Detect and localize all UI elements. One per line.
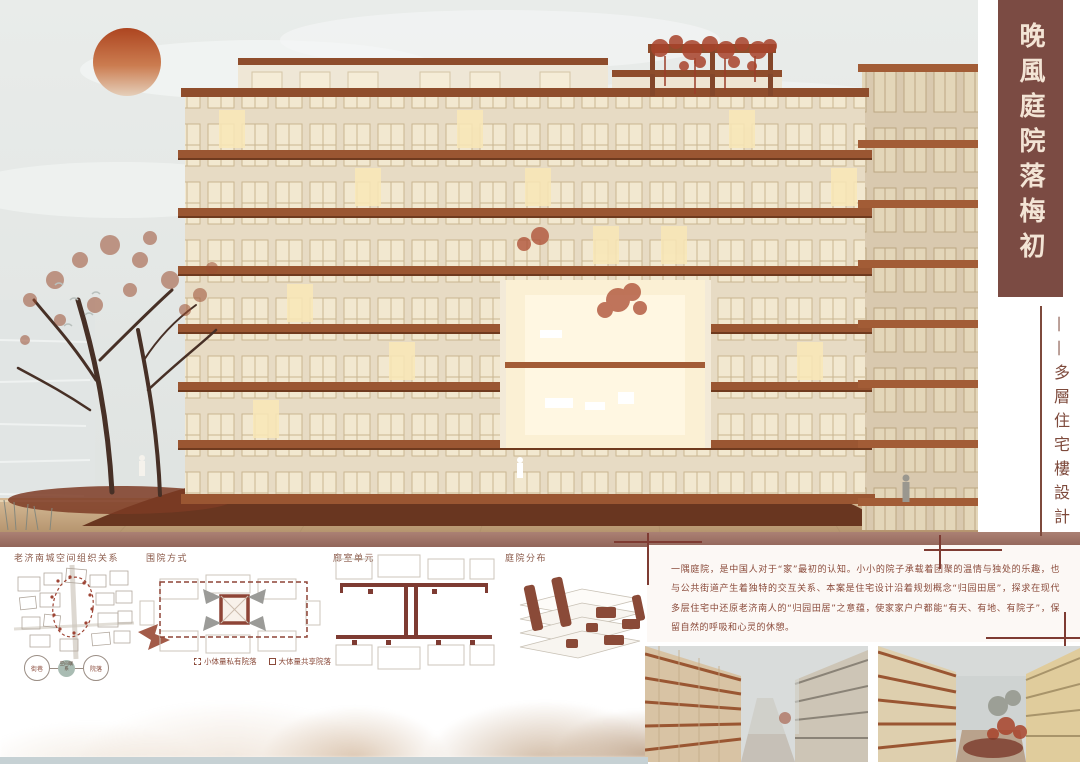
poster-title: 晚風庭院落梅初 <box>1012 22 1049 297</box>
crop-mark <box>924 549 1002 551</box>
design-description: 一隅庭院，是中国人对于“家”最初的认知。小小的院子承载着团聚的温情与独处的乐趣，… <box>647 545 1080 642</box>
axonometric-diagram <box>520 576 645 658</box>
street-view-photo-1 <box>645 646 868 762</box>
arrow-right <box>138 624 170 650</box>
relation-link <box>50 668 58 669</box>
dashed-box-icon <box>194 658 201 665</box>
crop-mark <box>986 637 1080 639</box>
relation-right-node: 院落 <box>83 655 109 681</box>
relation-link <box>75 668 83 669</box>
street-view-photo-2 <box>878 646 1080 762</box>
legend-item-shared: 大体量共享院落 <box>269 656 332 667</box>
solid-box-icon <box>269 658 276 665</box>
building-rendering <box>0 0 978 532</box>
relation-left-node: 街巷 <box>24 655 50 681</box>
legend-private-label: 小体量私有院落 <box>204 656 257 667</box>
poster-subtitle: ——多層住宅樓設計 <box>1048 316 1072 532</box>
poster-page: 晚風庭院落梅初 ——多層住宅樓設計 老济南城空间组织关系 围院方式 廊室单元 庭… <box>0 0 1080 764</box>
corridor-plan-diagram <box>336 555 494 669</box>
courtyard-legend: 小体量私有院落 大体量共享院落 <box>194 656 331 667</box>
title-banner: 晚風庭院落梅初 <box>998 0 1063 297</box>
legend-shared-label: 大体量共享院落 <box>279 656 332 667</box>
relation-diagram: 街巷 空间联系 院落 <box>24 655 109 681</box>
crop-mark <box>614 541 702 543</box>
site-plan-diagram <box>14 565 134 659</box>
crop-mark <box>939 535 941 569</box>
sun <box>93 28 161 96</box>
subtitle-rule <box>1040 306 1042 536</box>
crop-mark <box>647 533 649 585</box>
bottom-edge-strip <box>0 757 648 764</box>
relation-center-node: 空间联系 <box>58 660 75 677</box>
legend-item-private: 小体量私有院落 <box>194 656 257 667</box>
building-main <box>178 35 978 530</box>
